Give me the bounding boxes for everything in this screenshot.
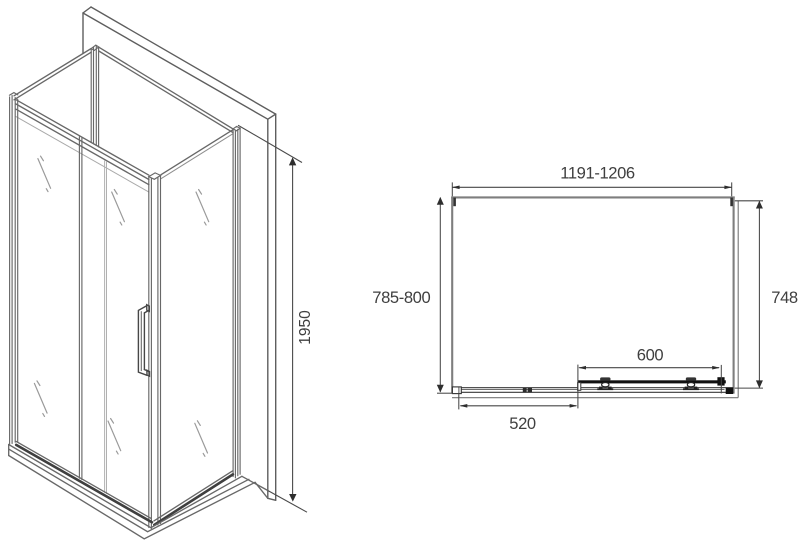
svg-text:520: 520: [509, 414, 536, 433]
svg-text:1950: 1950: [297, 310, 314, 345]
svg-text:600: 600: [637, 346, 664, 365]
svg-text:748: 748: [771, 288, 798, 307]
svg-text:1191-1206: 1191-1206: [560, 163, 635, 182]
svg-text:785-800: 785-800: [372, 288, 430, 307]
